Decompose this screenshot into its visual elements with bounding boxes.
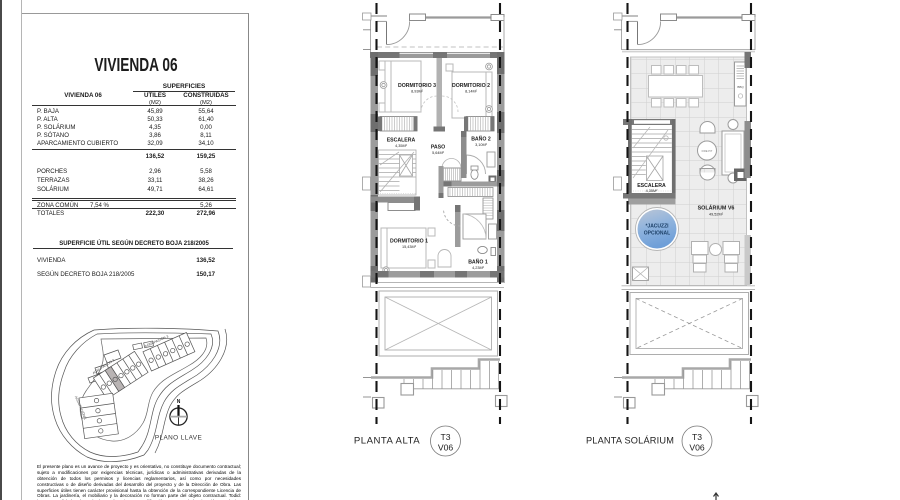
svg-text:BAÑO 2: BAÑO 2 <box>471 136 491 143</box>
svg-text:4,23M²: 4,23M² <box>472 266 485 270</box>
svg-text:*JACUZZI: *JACUZZI <box>645 224 669 230</box>
svg-text:OPCIONAL: OPCIONAL <box>644 231 670 237</box>
svg-text:3,10M²: 3,10M² <box>475 143 488 147</box>
svg-text:SOLÁRIUM V6: SOLÁRIUM V6 <box>698 205 735 212</box>
svg-text:49,52M²: 49,52M² <box>709 213 724 217</box>
svg-text:8,93M²: 8,93M² <box>411 90 424 94</box>
svg-text:DORMITORIO 2: DORMITORIO 2 <box>452 83 490 89</box>
svg-text:PLANO LLAVE: PLANO LLAVE <box>155 435 202 442</box>
svg-text:N: N <box>177 399 181 405</box>
svg-text:4,35M²: 4,35M² <box>646 189 659 193</box>
svg-text:V06: V06 <box>438 443 454 453</box>
svg-text:BAÑO 1: BAÑO 1 <box>468 259 488 266</box>
svg-text:PLANTA ALTA: PLANTA ALTA <box>354 436 420 447</box>
svg-text:15,43M²: 15,43M² <box>402 245 417 249</box>
svg-text:ESCALERA: ESCALERA <box>387 138 416 144</box>
svg-text:4,35M²: 4,35M² <box>395 144 408 148</box>
svg-text:PLANTA SOLÁRIUM: PLANTA SOLÁRIUM <box>586 436 674 446</box>
svg-text:BBQ: BBQ <box>737 85 744 89</box>
svg-text:8,14M²: 8,14M² <box>465 90 478 94</box>
svg-text:PASO: PASO <box>431 145 445 151</box>
svg-text:T3: T3 <box>692 432 702 442</box>
svg-text:5,64M²: 5,64M² <box>432 151 445 155</box>
svg-text:T3: T3 <box>440 432 450 442</box>
svg-text:DORMITORIO 3: DORMITORIO 3 <box>398 83 436 89</box>
svg-text:V06: V06 <box>689 443 705 453</box>
svg-text:FIRE PIT: FIRE PIT <box>702 149 713 153</box>
svg-text:DORMITORIO 1: DORMITORIO 1 <box>390 239 428 245</box>
